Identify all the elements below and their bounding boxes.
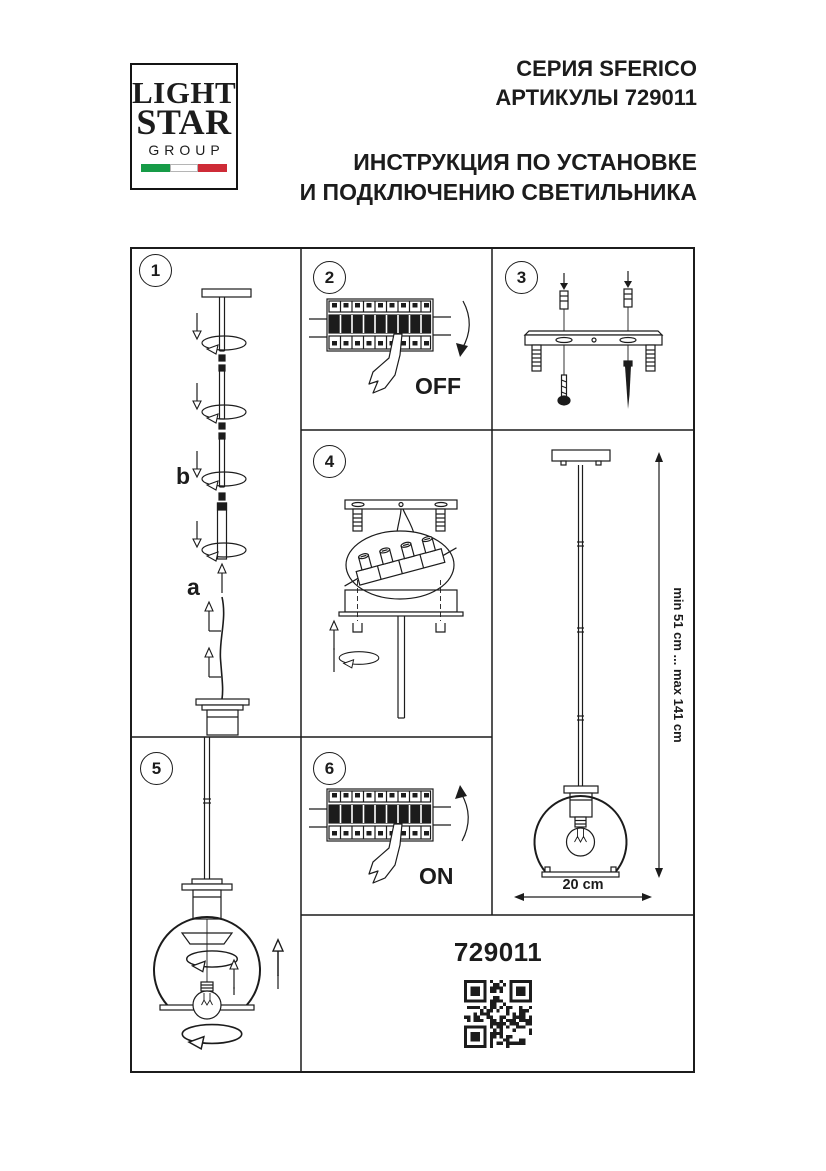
step-3-number: 3: [517, 268, 526, 288]
width-label: 20 cm: [562, 877, 603, 893]
threaded-stud: [353, 509, 362, 531]
header-text-block: СЕРИЯ SFERICO АРТИКУЛЫ 729011 ИНСТРУКЦИЯ…: [300, 54, 697, 207]
width-dimension: 20 cm: [514, 877, 652, 901]
off-label: OFF: [415, 373, 461, 399]
up-arrow-icon: [205, 648, 213, 677]
height-range-label: min 51 cm ... max 141 cm: [671, 587, 686, 742]
keyhole-slot: [353, 623, 362, 632]
step-1-badge: 1: [139, 254, 172, 287]
screw: [558, 375, 570, 405]
up-arrow-icon: [330, 621, 338, 650]
down-arrow-icon: [193, 313, 201, 339]
step-5-number: 5: [152, 759, 161, 779]
rotate-arrow-icon: [339, 652, 379, 668]
step-6-number: 6: [325, 759, 334, 779]
instruction-grid: 1 b: [130, 247, 695, 1073]
curved-down-arrow-icon: [456, 301, 469, 357]
series-title: СЕРИЯ SFERICO: [300, 54, 697, 83]
assembled-lamp-diagram: min 51 cm ... max 141 cm 20 cm: [492, 430, 695, 915]
up-arrow-icon: [205, 602, 213, 631]
step-5-panel: 5: [130, 737, 301, 1073]
keyhole-slot: [436, 623, 445, 632]
threaded-stud: [646, 345, 655, 371]
down-arrow-icon: [193, 383, 201, 409]
label-a: a: [187, 574, 200, 600]
article-qr-panel: 729011: [301, 915, 695, 1073]
up-arrow-icon: [218, 564, 226, 593]
step-5-badge: 5: [140, 752, 173, 785]
step-3-badge: 3: [505, 261, 538, 294]
step-2-panel: 2: [301, 247, 492, 430]
screw: [624, 361, 632, 409]
qr-code: [464, 980, 532, 1048]
assembled-lamp-panel: min 51 cm ... max 141 cm 20 cm: [492, 430, 695, 915]
step-1-number: 1: [151, 261, 160, 281]
flag-red-stripe: [198, 164, 227, 172]
step-6-badge: 6: [313, 752, 346, 785]
up-arrow-icon: [273, 940, 283, 976]
flag-white-stripe: [170, 164, 199, 172]
step-1-panel: 1 b: [130, 247, 301, 737]
rod-disassembly-diagram: b a: [130, 247, 301, 737]
down-arrow-icon: [193, 521, 201, 547]
step-3-panel: 3: [492, 247, 695, 430]
light-bulb: [567, 817, 595, 856]
label-b: b: [176, 463, 190, 489]
light-bulb: [193, 982, 221, 1019]
step-4-badge: 4: [313, 445, 346, 478]
curved-up-arrow-icon: [455, 785, 468, 841]
article-number: 729011: [301, 937, 695, 968]
step-6-panel: 6: [301, 737, 492, 915]
threaded-stud: [436, 509, 445, 531]
step-4-number: 4: [325, 452, 334, 472]
on-label: ON: [419, 863, 454, 889]
globe-attachment-diagram: [130, 737, 301, 1073]
height-dimension: min 51 cm ... max 141 cm: [655, 452, 686, 878]
logo-word-group: GROUP: [132, 142, 236, 158]
threaded-stud: [532, 345, 541, 371]
lightstar-logo: LIGHT STAR GROUP: [130, 63, 238, 190]
instruction-title-line1: ИНСТРУКЦИЯ ПО УСТАНОВКЕ: [300, 147, 697, 177]
step-2-number: 2: [325, 268, 334, 288]
logo-word-star: STAR: [132, 107, 236, 138]
instruction-title: ИНСТРУКЦИЯ ПО УСТАНОВКЕ И ПОДКЛЮЧЕНИЮ СВ…: [300, 147, 697, 207]
article-title: АРТИКУЛЫ 729011: [300, 83, 697, 112]
italian-flag-bar: [141, 164, 227, 172]
step-2-badge: 2: [313, 261, 346, 294]
down-arrow-icon: [193, 451, 201, 477]
power-cable: [220, 597, 223, 699]
step-4-panel: 4: [301, 430, 492, 737]
flag-green-stripe: [141, 164, 170, 172]
instruction-page: LIGHT STAR GROUP СЕРИЯ SFERICO АРТИКУЛЫ …: [0, 0, 826, 1171]
rotate-arrow-icon: [182, 1025, 241, 1049]
instruction-title-line2: И ПОДКЛЮЧЕНИЮ СВЕТИЛЬНИКА: [300, 177, 697, 207]
lamp-socket: [196, 699, 249, 735]
